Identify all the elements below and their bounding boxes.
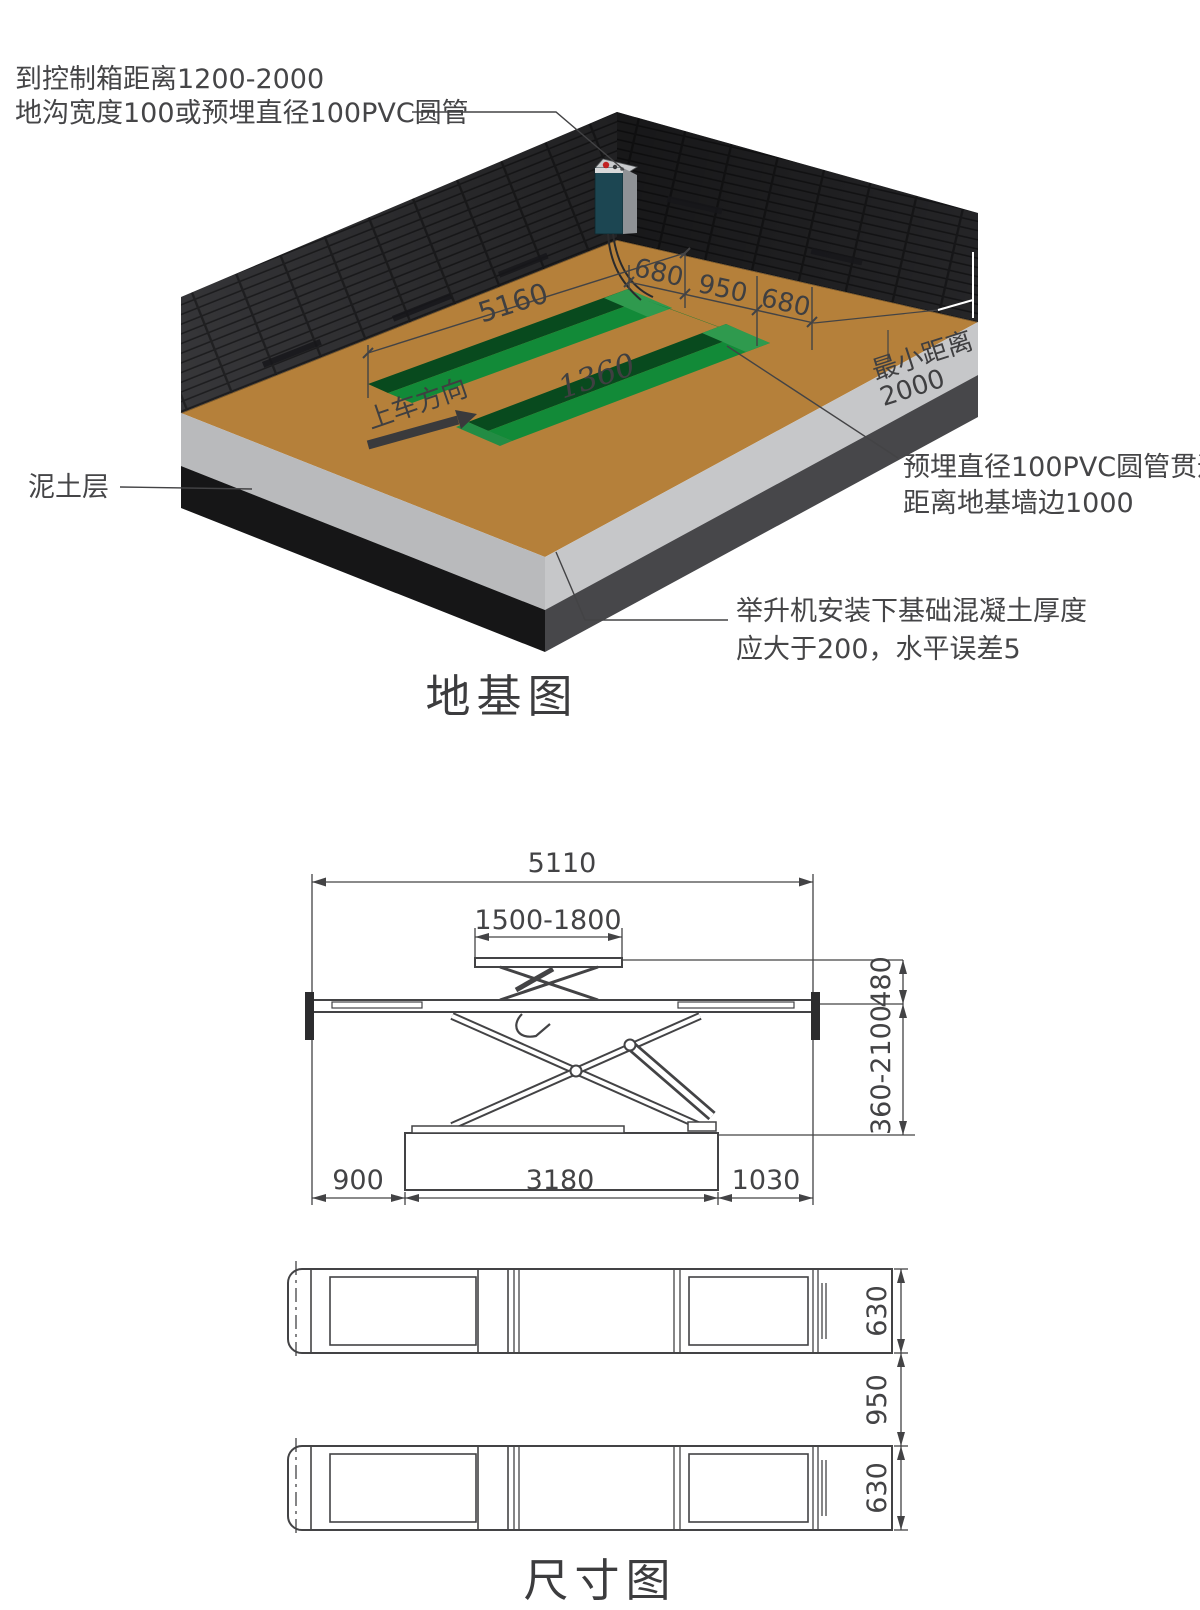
dim-5110: 5110 [528,848,597,879]
dim-3180: 3180 [526,1165,595,1196]
plan-view: 630 950 630 尺寸图 [288,1261,908,1607]
dimension-title: 尺寸图 [523,1554,676,1607]
dim-plan-chain: 630 950 630 [862,1269,908,1530]
dim-630-bottom: 630 [862,1462,893,1514]
control-box-button [603,162,609,168]
page: 5160 680 950 680 最小距离 2000 1360 [0,0,1200,1610]
dim-480: 480 [866,956,897,1008]
dim-1030: 1030 [732,1165,801,1196]
note-pvc1: 预埋直径100PVC圆管贯通 [903,452,1200,483]
dim-950-gap: 950 [862,1374,893,1426]
plan-platform-top [288,1261,892,1361]
note-trench: 地沟宽度100或预埋直径100PVC圆管 [15,98,469,129]
dim-platform-height: 480 [866,956,907,1008]
foundation-title: 地基图 [425,670,578,723]
dim-1500-1800: 1500-1800 [474,905,621,936]
scissor-mechanism [452,1014,716,1131]
note-pvc2: 距离地基墙边1000 [903,488,1134,519]
dim-lift-range: 360-2100 [866,1004,907,1135]
dim-bottom-chain: 900 3180 1030 [312,1165,813,1205]
side-view: 5110 1500-1800 480 [305,848,915,1205]
dim-overall-length: 5110 [312,848,813,887]
top-platform-drawing [475,958,622,1000]
foundation-scene: 5160 680 950 680 最小距离 2000 1360 [15,64,1200,723]
plan-platform-bottom [288,1438,892,1538]
dim-360-2100: 360-2100 [866,1005,897,1135]
dim-900: 900 [332,1165,384,1196]
dim-top-platform: 1500-1800 [474,905,622,958]
platform-end-block [811,992,820,1040]
note-concrete2: 应大于200，水平误差5 [736,634,1021,665]
technical-drawing: 5160 680 950 680 最小距离 2000 1360 [0,0,1200,1610]
note-concrete1: 举升机安装下基础混凝土厚度 [736,596,1087,627]
note-control-box: 到控制箱距离1200-2000 [15,64,324,95]
dim-630-top: 630 [862,1285,893,1337]
platform-end-block [305,992,314,1040]
main-platform-drawing [305,992,820,1040]
note-soil: 泥土层 [28,472,109,503]
